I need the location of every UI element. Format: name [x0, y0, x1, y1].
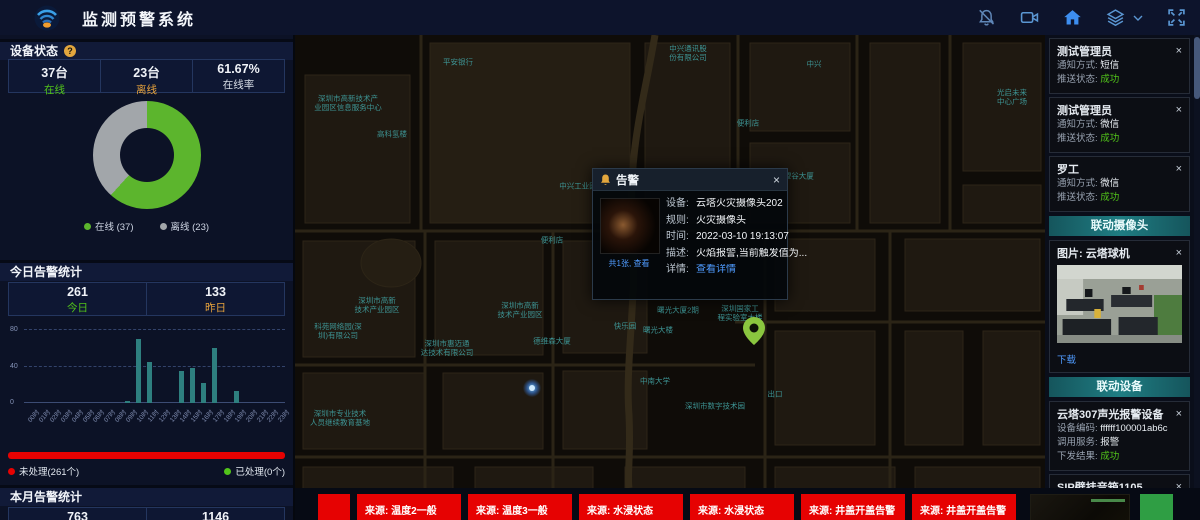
x-tick: 16时 [198, 405, 209, 441]
bottom-alert-text: 来源: 井盖开盖告警 [920, 506, 1006, 517]
device-status-title: 设备状态 [10, 41, 58, 61]
card-title: 云塔307声光报警设备 [1057, 406, 1176, 422]
home-icon[interactable] [1063, 8, 1082, 27]
today-alarms-title: 今日告警统计 [10, 262, 82, 282]
x-tick: 06时 [89, 405, 100, 441]
x-tick: 09时 [122, 405, 133, 441]
stat-value: 763 [9, 510, 146, 520]
map-label: 高科氢楼 [377, 130, 407, 139]
map-label: 便利店 [541, 236, 564, 245]
map-label: 平安银行 [443, 58, 473, 67]
device-location-dot[interactable] [523, 379, 541, 397]
alarm-bell-icon [600, 174, 611, 186]
map-label: 出口 [768, 390, 783, 399]
unprocessed-progress-bar [8, 452, 285, 459]
device-status-stats: 37台在线23台离线61.67%在线率 [8, 59, 285, 93]
map-label: 深圳市专业技术 人员继续教育基地 [310, 409, 370, 427]
alert-fields: 设备:云塔火灾摄像头202规则:火灾摄像头时间:2022-03-10 19:13… [666, 198, 807, 281]
notify-card: 测试管理员×通知方式: 微信推送状态: 成功 [1049, 97, 1190, 153]
field-label: 详情: [666, 264, 696, 275]
bar-rect [234, 391, 239, 403]
hourly-alarm-chart: 04080 00时01时02时03时04时05时06时07时08时09时10时1… [8, 318, 287, 443]
x-tick: 15时 [187, 405, 198, 441]
bottom-alert-tile[interactable]: 来源: 井盖开盖告警 [801, 494, 905, 520]
card-row: 推送状态: 成功 [1057, 132, 1182, 146]
month-stat-cell: 1146 [147, 508, 284, 520]
bell-muted-icon[interactable] [977, 8, 996, 27]
x-tick: 21时 [252, 405, 263, 441]
left-panel: 设备状态 ? 37台在线23台离线61.67%在线率 在线 (37)离线 (23… [0, 35, 295, 520]
card-title: 测试管理员 [1057, 102, 1176, 118]
legend-label: 在线 (37) [95, 219, 134, 233]
bar [35, 330, 46, 403]
bar [133, 330, 144, 403]
bar [165, 330, 176, 403]
stat-label: 在线 [9, 82, 100, 97]
bottom-alert-text: 来源: 水浸状态 [587, 506, 653, 517]
row-value: 报警 [1100, 437, 1119, 448]
y-tick-label: 80 [10, 326, 18, 333]
right-panel: 测试管理员×通知方式: 短信推送状态: 成功测试管理员×通知方式: 微信推送状态… [1045, 35, 1194, 520]
bar [155, 330, 166, 403]
x-tick: 20时 [242, 405, 253, 441]
map-label: 深圳市高新技术产 业园区信息服务中心 [314, 94, 382, 112]
close-icon[interactable]: × [1176, 409, 1182, 420]
bar [176, 330, 187, 403]
popup-field: 描述:火焰报警,当前触发值为... [666, 248, 807, 259]
x-tick: 19时 [231, 405, 242, 441]
alert-thumbnail-wrap: 共1张, 查看 [600, 198, 658, 281]
stat-label: 在线率 [193, 77, 284, 92]
row-value: 成功 [1100, 451, 1119, 462]
x-tick: 10时 [133, 405, 144, 441]
bar [46, 330, 57, 403]
x-tick: 14时 [176, 405, 187, 441]
device-stat-cell: 61.67%在线率 [193, 60, 284, 92]
x-tick: 17时 [209, 405, 220, 441]
x-tick: 12时 [155, 405, 166, 441]
x-tick: 11时 [144, 405, 155, 441]
bottom-alert-tile[interactable]: 来源: 温度3一般 [468, 494, 572, 520]
row-value: 微信 [1100, 119, 1119, 130]
bar [187, 330, 198, 403]
camera-card: 图片: 云塔球机 × 下载 [1049, 240, 1190, 373]
field-value: 火灾摄像头 [696, 215, 746, 226]
bar-rect [147, 362, 152, 403]
bar [220, 330, 231, 403]
bar-rect [212, 348, 217, 403]
chart-x-axis: 00时01时02时03时04时05时06时07时08时09时10时11时12时1… [24, 405, 285, 441]
map-label: 深圳市高新 技术产业园区 [355, 296, 400, 314]
field-value: 云塔火灾摄像头202 [696, 198, 783, 209]
bar [198, 330, 209, 403]
popup-field: 设备:云塔火灾摄像头202 [666, 198, 807, 209]
bottom-alert-text: 来源: 温度3一般 [476, 506, 548, 517]
stat-value: 23台 [101, 62, 192, 81]
popup-field: 规则:火灾摄像头 [666, 215, 807, 226]
chevron-down-icon[interactable] [1133, 14, 1143, 22]
legend-dot-icon [84, 223, 91, 230]
stat-label: 昨日 [147, 300, 284, 315]
stat-value: 37台 [9, 62, 100, 81]
row-label: 设备编码: [1057, 423, 1100, 434]
alert-popup-title: 告警 [616, 172, 768, 188]
bar [209, 330, 220, 403]
x-tick: 23时 [274, 405, 285, 441]
field-label: 描述: [666, 248, 696, 259]
map-label: 中兴 [807, 60, 822, 69]
card-row: 调用服务: 报警 [1057, 436, 1182, 450]
row-value: 成功 [1100, 192, 1119, 203]
bar [57, 330, 68, 403]
map-label: 深圳市高新 技术产业园区 [498, 301, 543, 319]
close-icon[interactable]: × [1176, 46, 1182, 57]
bar [24, 330, 35, 403]
bar-rect [136, 339, 141, 403]
bar-rect [201, 383, 206, 403]
map-pin-icon[interactable] [743, 317, 765, 345]
bar [100, 330, 111, 403]
legend-processed: 已处理(0个) [224, 464, 285, 478]
bottom-alert-tiles: 来源: 温度2一般来源: 温度3一般来源: 水浸状态来源: 水浸状态来源: 井盖… [357, 494, 1016, 520]
row-label: 通知方式: [1057, 119, 1100, 130]
chart-bars [24, 330, 285, 403]
x-tick: 04时 [68, 405, 79, 441]
popup-field: 详情:查看详情 [666, 264, 807, 275]
bar [242, 330, 253, 403]
device-section-header: 联动设备 [1049, 377, 1190, 397]
month-stat-cell: 763 [9, 508, 147, 520]
bottom-alert-tile[interactable]: 来源: 井盖开盖告警 [912, 494, 1016, 520]
map-label: 曙光大厦2期 [657, 306, 699, 315]
legend-item: 在线 (37) [84, 219, 134, 233]
notify-card: 云塔307声光报警设备×设备编码: ffffff100001ab6c调用服务: … [1049, 401, 1190, 471]
row-label: 通知方式: [1057, 60, 1100, 71]
header: 监测预警系统 [0, 0, 1200, 36]
card-row: 通知方式: 短信 [1057, 59, 1182, 73]
row-value: 微信 [1100, 178, 1119, 189]
bottom-alert-bar: 来源: 温度2一般来源: 温度3一般来源: 水浸状态来源: 水浸状态来源: 井盖… [295, 488, 1200, 520]
legend-unprocessed: 未处理(261个) [8, 464, 79, 478]
notify-card: 罗工×通知方式: 微信推送状态: 成功 [1049, 156, 1190, 212]
bottom-green-thumbnail[interactable] [1140, 494, 1173, 520]
bottom-alert-tile[interactable]: 来源: 水浸状态 [579, 494, 683, 520]
legend-dot-icon [160, 223, 167, 230]
notify-card-list: 测试管理员×通知方式: 短信推送状态: 成功测试管理员×通知方式: 微信推送状态… [1045, 38, 1194, 212]
bar [122, 330, 133, 403]
bar [78, 330, 89, 403]
today-stat-cell: 261今日 [9, 283, 147, 315]
row-label: 推送状态: [1057, 133, 1100, 144]
legend-dot-icon [8, 468, 15, 475]
bar [111, 330, 122, 403]
bar-rect [125, 401, 130, 403]
row-label: 通知方式: [1057, 178, 1100, 189]
field-value: 2022-03-10 19:13:07 [696, 231, 789, 242]
card-title: 图片: 云塔球机 [1057, 245, 1176, 261]
map-label: 中南大学 [640, 377, 670, 386]
detail-link[interactable]: 查看详情 [696, 264, 736, 275]
stat-value: 61.67% [193, 62, 284, 76]
row-label: 推送状态: [1057, 192, 1100, 203]
stat-value: 261 [9, 285, 146, 299]
snapshot-view-link[interactable]: 共1张, 查看 [600, 258, 658, 269]
legend-item: 离线 (23) [160, 219, 210, 233]
bar [89, 330, 100, 403]
scrollbar-track[interactable] [1194, 35, 1200, 520]
bottom-alert-tile[interactable]: 来源: 温度2一般 [357, 494, 461, 520]
map-label: 深圳市惠迈通 达技术有限公司 [421, 339, 474, 357]
card-row: 通知方式: 微信 [1057, 118, 1182, 132]
bar [144, 330, 155, 403]
row-value: 成功 [1100, 74, 1119, 85]
bar [252, 330, 263, 403]
x-tick: 22时 [263, 405, 274, 441]
x-tick: 05时 [78, 405, 89, 441]
card-row: 通知方式: 微信 [1057, 177, 1182, 191]
camera-snapshot-image[interactable] [1057, 265, 1182, 343]
row-value: 成功 [1100, 133, 1119, 144]
field-label: 设备: [666, 198, 696, 209]
bottom-camera-thumbnail[interactable] [1030, 494, 1130, 520]
help-icon[interactable]: ? [64, 45, 76, 57]
map-label: 便利店 [737, 119, 760, 128]
header-toolbar [977, 8, 1186, 27]
section-device-status: 设备状态 ? [0, 39, 293, 60]
x-tick: 01时 [35, 405, 46, 441]
map-label: 光启未来中心广场 [996, 88, 1029, 106]
map-area[interactable]: 中兴通讯股 份有限公司平安银行深圳市高新技术产 业园区信息服务中心光启未来中心广… [295, 35, 1045, 488]
bar [231, 330, 242, 403]
legend-dot-icon [224, 468, 231, 475]
month-alarms-title: 本月告警统计 [10, 487, 82, 507]
row-value: ffffff100001ab6c [1100, 423, 1167, 434]
card-row: 推送状态: 成功 [1057, 191, 1182, 205]
bottom-alert-text: 来源: 温度2一般 [365, 506, 437, 517]
bar [274, 330, 285, 403]
download-link[interactable]: 下载 [1057, 352, 1182, 366]
x-tick: 07时 [100, 405, 111, 441]
card-row: 推送状态: 成功 [1057, 73, 1182, 87]
processing-legend: 未处理(261个) 已处理(0个) [8, 464, 285, 478]
stat-label: 离线 [101, 82, 192, 97]
x-tick: 03时 [57, 405, 68, 441]
map-label: 快乐园 [614, 322, 637, 331]
alert-popup-header: 告警 × [593, 169, 787, 191]
bottom-alert-tile[interactable]: 来源: 水浸状态 [690, 494, 794, 520]
bottom-alert-tile-partial[interactable] [318, 494, 350, 520]
app-root: 监测预警系统 [0, 0, 1200, 520]
layers-icon[interactable] [1106, 8, 1125, 27]
map-label: 深圳市数字技术园 [685, 402, 745, 411]
x-tick: 18时 [220, 405, 231, 441]
map-label: 科苑网络园(深 圳)有限公司 [314, 322, 362, 340]
bar [263, 330, 274, 403]
stat-value: 133 [147, 285, 284, 299]
card-title: 罗工 [1057, 161, 1176, 177]
y-tick-label: 0 [10, 399, 14, 406]
x-tick: 13时 [165, 405, 176, 441]
device-stat-cell: 37台在线 [9, 60, 101, 92]
unprocessed-label: 未处理(261个) [19, 464, 79, 478]
scrollbar-thumb[interactable] [1194, 37, 1200, 99]
card-row: 下发结果: 成功 [1057, 450, 1182, 464]
bar-rect [190, 368, 195, 403]
bar-rect [179, 371, 184, 403]
camera-section-header: 联动摄像头 [1049, 216, 1190, 236]
bottom-alert-text: 来源: 井盖开盖告警 [809, 506, 895, 517]
x-tick: 00时 [24, 405, 35, 441]
donut-legend: 在线 (37)离线 (23) [0, 219, 293, 233]
y-tick-label: 40 [10, 363, 18, 370]
popup-field: 时间:2022-03-10 19:13:07 [666, 231, 807, 242]
map-label: 曙光大楼 [643, 326, 673, 335]
row-label: 下发结果: [1057, 451, 1100, 462]
map-label: 德维森大厦 [533, 337, 571, 346]
close-icon[interactable]: × [1176, 105, 1182, 116]
legend-label: 离线 (23) [171, 219, 210, 233]
section-today-alarms: 今日告警统计 [0, 260, 293, 281]
month-alarms-stats: 7631146 [8, 507, 285, 520]
stat-value: 1146 [147, 510, 284, 520]
bottom-alert-text: 来源: 水浸状态 [698, 506, 764, 517]
close-icon[interactable]: × [1176, 164, 1182, 175]
device-stat-cell: 23台离线 [101, 60, 193, 92]
notify-card: 测试管理员×通知方式: 短信推送状态: 成功 [1049, 38, 1190, 94]
today-stat-cell: 133昨日 [147, 283, 284, 315]
x-tick: 02时 [46, 405, 57, 441]
video-camera-icon[interactable] [1020, 8, 1039, 27]
fullscreen-icon[interactable] [1167, 8, 1186, 27]
device-donut [93, 101, 201, 209]
x-tick-label: 23时 [275, 407, 292, 424]
field-label: 规则: [666, 215, 696, 226]
stat-label: 今日 [9, 300, 146, 315]
card-row: 设备编码: ffffff100001ab6c [1057, 422, 1182, 436]
today-alarms-stats: 261今日133昨日 [8, 282, 285, 316]
row-value: 短信 [1100, 60, 1119, 71]
processed-label: 已处理(0个) [235, 464, 285, 478]
close-icon[interactable]: × [773, 174, 780, 186]
card-title: 测试管理员 [1057, 43, 1176, 59]
row-label: 推送状态: [1057, 74, 1100, 85]
alert-popup-body: 共1张, 查看 设备:云塔火灾摄像头202规则:火灾摄像头时间:2022-03-… [593, 191, 787, 281]
close-icon[interactable]: × [1176, 248, 1182, 259]
x-tick: 08时 [111, 405, 122, 441]
bar [68, 330, 79, 403]
donut-hole [120, 128, 174, 182]
field-label: 时间: [666, 231, 696, 242]
field-value: 火焰报警,当前触发值为... [696, 248, 807, 259]
alert-snapshot-image[interactable] [600, 198, 660, 254]
row-label: 调用服务: [1057, 437, 1100, 448]
map-label: 中兴通讯股 份有限公司 [669, 44, 707, 62]
alert-popup: 告警 × 共1张, 查看 设备:云塔火灾摄像头202规则:火灾摄像头时间:202… [592, 168, 788, 300]
app-logo-icon [34, 5, 60, 31]
page-title: 监测预警系统 [82, 6, 196, 30]
section-month-alarms: 本月告警统计 [0, 485, 293, 506]
